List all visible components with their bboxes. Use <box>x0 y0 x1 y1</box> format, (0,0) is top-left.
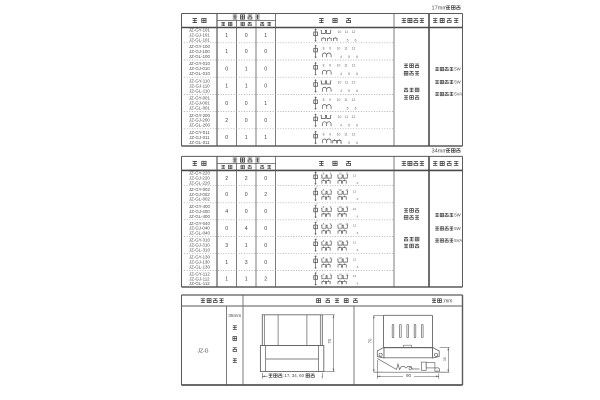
svg-text:12: 12 <box>353 258 357 262</box>
svg-text:2: 2 <box>245 176 248 182</box>
svg-text:11: 11 <box>345 81 349 85</box>
svg-text:10: 10 <box>338 188 342 192</box>
svg-text:JZ-GL-002: JZ-GL-002 <box>189 197 211 202</box>
svg-text:12: 12 <box>352 81 356 85</box>
svg-text:9: 9 <box>329 64 331 68</box>
svg-text:6: 6 <box>356 89 358 93</box>
svg-text::17, 34, 60: :17, 34, 60 <box>283 373 304 378</box>
svg-text:5: 5 <box>348 55 350 59</box>
svg-text:6: 6 <box>355 106 357 110</box>
svg-text:2: 2 <box>264 192 267 198</box>
svg-text:8: 8 <box>323 205 325 209</box>
svg-text:JZ-G: JZ-G <box>197 349 208 355</box>
svg-text:35mm: 35mm <box>228 313 241 318</box>
svg-text:12: 12 <box>352 98 356 102</box>
svg-text:12: 12 <box>353 174 357 178</box>
svg-text:0: 0 <box>245 192 248 198</box>
svg-text:0: 0 <box>264 66 267 72</box>
svg-text:12: 12 <box>353 190 357 194</box>
svg-text:12: 12 <box>352 64 356 68</box>
svg-text:6: 6 <box>355 39 357 43</box>
svg-text:1: 1 <box>245 243 248 249</box>
svg-text:2: 2 <box>264 277 267 283</box>
svg-text:12: 12 <box>353 207 357 211</box>
svg-text:0: 0 <box>264 243 267 249</box>
svg-text:0: 0 <box>245 33 248 39</box>
svg-text:8: 8 <box>323 188 325 192</box>
svg-text:2: 2 <box>225 118 228 124</box>
svg-text:4: 4 <box>225 209 228 215</box>
svg-text:12: 12 <box>352 132 356 136</box>
svg-text:JZ-GL-130: JZ-GL-130 <box>189 265 211 270</box>
svg-text:70: 70 <box>327 338 332 343</box>
svg-text:8: 8 <box>323 256 325 260</box>
svg-text:JZ-GL-001: JZ-GL-001 <box>189 106 211 111</box>
svg-text:6: 6 <box>357 248 359 252</box>
svg-text:0: 0 <box>264 49 267 55</box>
svg-text:0: 0 <box>264 176 267 182</box>
svg-text:11: 11 <box>344 132 348 136</box>
svg-text:6: 6 <box>357 197 359 201</box>
svg-text:1: 1 <box>264 135 267 141</box>
svg-text:12: 12 <box>352 46 356 50</box>
svg-text:1: 1 <box>264 101 267 107</box>
svg-text:5: 5 <box>348 141 350 145</box>
svg-text:JZ-GL-200: JZ-GL-200 <box>189 123 211 128</box>
svg-text:3: 3 <box>245 260 248 266</box>
svg-text:5W: 5W <box>454 80 461 85</box>
svg-text:0: 0 <box>264 260 267 266</box>
svg-text:0: 0 <box>225 101 228 107</box>
svg-text:6: 6 <box>357 231 359 235</box>
svg-text:JZ-GL-400: JZ-GL-400 <box>189 214 211 219</box>
svg-text:1: 1 <box>245 84 248 90</box>
svg-text:0: 0 <box>245 101 248 107</box>
svg-text:5: 5 <box>347 39 349 43</box>
svg-text:JZ-GL-110: JZ-GL-110 <box>189 88 210 93</box>
svg-text:12: 12 <box>352 30 356 34</box>
svg-text:90: 90 <box>406 373 412 378</box>
svg-text:5W: 5W <box>454 226 461 231</box>
svg-text:10: 10 <box>337 64 341 68</box>
svg-text::mm: :mm <box>443 298 453 304</box>
svg-text:35: 35 <box>443 357 447 361</box>
svg-text:5VA: 5VA <box>454 92 462 97</box>
svg-text:11: 11 <box>344 98 348 102</box>
svg-text:8: 8 <box>323 222 325 226</box>
svg-text:1: 1 <box>264 33 267 39</box>
svg-text:8: 8 <box>323 132 325 136</box>
svg-text:JZ-GL-010: JZ-GL-010 <box>189 71 211 76</box>
svg-text:9: 9 <box>329 98 331 102</box>
svg-text:8: 8 <box>323 98 325 102</box>
svg-text:12: 12 <box>353 241 357 245</box>
svg-text:0: 0 <box>264 209 267 215</box>
svg-text:5: 5 <box>348 89 350 93</box>
svg-text:10: 10 <box>337 46 341 50</box>
svg-text:JZ-GL-220: JZ-GL-220 <box>189 181 211 186</box>
svg-text:4: 4 <box>245 226 248 232</box>
svg-text:11: 11 <box>344 46 348 50</box>
svg-text:10: 10 <box>338 172 342 176</box>
svg-text:8: 8 <box>323 46 325 50</box>
svg-text:10: 10 <box>338 256 342 260</box>
svg-text:1: 1 <box>245 135 248 141</box>
svg-text:34mm: 34mm <box>432 148 448 154</box>
svg-text:9: 9 <box>329 132 331 136</box>
svg-text:70: 70 <box>368 338 373 343</box>
svg-text:JZ-GL-040: JZ-GL-040 <box>189 231 211 236</box>
svg-text:0: 0 <box>225 192 228 198</box>
svg-text:11: 11 <box>345 30 349 34</box>
svg-text:JZ-GL-310: JZ-GL-310 <box>189 248 211 253</box>
svg-text:12: 12 <box>352 115 356 119</box>
svg-text:6: 6 <box>357 282 359 286</box>
svg-text:5W: 5W <box>454 213 461 218</box>
svg-text:6: 6 <box>356 55 358 59</box>
svg-text:10: 10 <box>337 98 341 102</box>
svg-text:0: 0 <box>225 135 228 141</box>
svg-text:10: 10 <box>338 115 342 119</box>
svg-text:2: 2 <box>225 176 228 182</box>
svg-text:10: 10 <box>338 272 342 276</box>
svg-text:6: 6 <box>357 265 359 269</box>
svg-text:4: 4 <box>340 141 342 145</box>
svg-text:0: 0 <box>245 118 248 124</box>
svg-text:3: 3 <box>225 243 228 249</box>
svg-text:10: 10 <box>338 81 342 85</box>
svg-text:0: 0 <box>245 209 248 215</box>
svg-text:8: 8 <box>323 239 325 243</box>
svg-text:1: 1 <box>245 66 248 72</box>
svg-text:0: 0 <box>245 49 248 55</box>
svg-text:6: 6 <box>357 214 359 218</box>
svg-text:10: 10 <box>338 239 342 243</box>
svg-text:JZ-GL-011: JZ-GL-011 <box>189 140 210 145</box>
svg-text:11: 11 <box>344 64 348 68</box>
svg-text:0: 0 <box>264 118 267 124</box>
svg-text:8: 8 <box>323 172 325 176</box>
svg-text:1: 1 <box>225 33 228 39</box>
svg-text:4: 4 <box>340 72 342 76</box>
svg-text:4: 4 <box>340 124 342 128</box>
svg-text:5: 5 <box>348 72 350 76</box>
svg-text:5: 5 <box>347 106 349 110</box>
svg-text:6: 6 <box>357 181 359 185</box>
svg-text:10: 10 <box>338 222 342 226</box>
svg-text:0: 0 <box>264 226 267 232</box>
svg-text:1: 1 <box>225 84 228 90</box>
svg-text:0: 0 <box>225 66 228 72</box>
svg-text:JZ-GL-112: JZ-GL-112 <box>189 281 210 286</box>
svg-text:1: 1 <box>225 277 228 283</box>
svg-text:17mm: 17mm <box>432 6 448 12</box>
svg-text:4: 4 <box>340 89 342 93</box>
svg-text:6: 6 <box>356 72 358 76</box>
svg-text:5: 5 <box>348 124 350 128</box>
svg-text:JZ-GL-100: JZ-GL-100 <box>189 54 211 59</box>
svg-text:5W: 5W <box>454 67 461 72</box>
svg-text:12: 12 <box>353 224 357 228</box>
svg-text:4: 4 <box>340 55 342 59</box>
svg-text:0: 0 <box>225 226 228 232</box>
svg-text:11: 11 <box>345 115 349 119</box>
svg-text:10: 10 <box>337 132 341 136</box>
svg-text:1: 1 <box>225 49 228 55</box>
svg-text:5VA: 5VA <box>454 238 462 243</box>
svg-text:9: 9 <box>329 46 331 50</box>
svg-text:12: 12 <box>353 274 357 278</box>
svg-text:6: 6 <box>356 141 358 145</box>
svg-text:8: 8 <box>323 64 325 68</box>
svg-text:0: 0 <box>264 84 267 90</box>
svg-text:8: 8 <box>323 272 325 276</box>
svg-text:10: 10 <box>338 30 342 34</box>
svg-text:1: 1 <box>245 277 248 283</box>
svg-text:10: 10 <box>338 205 342 209</box>
svg-text:1: 1 <box>225 260 228 266</box>
svg-text:6: 6 <box>356 124 358 128</box>
svg-text:JZ-GL-101: JZ-GL-101 <box>189 38 211 43</box>
